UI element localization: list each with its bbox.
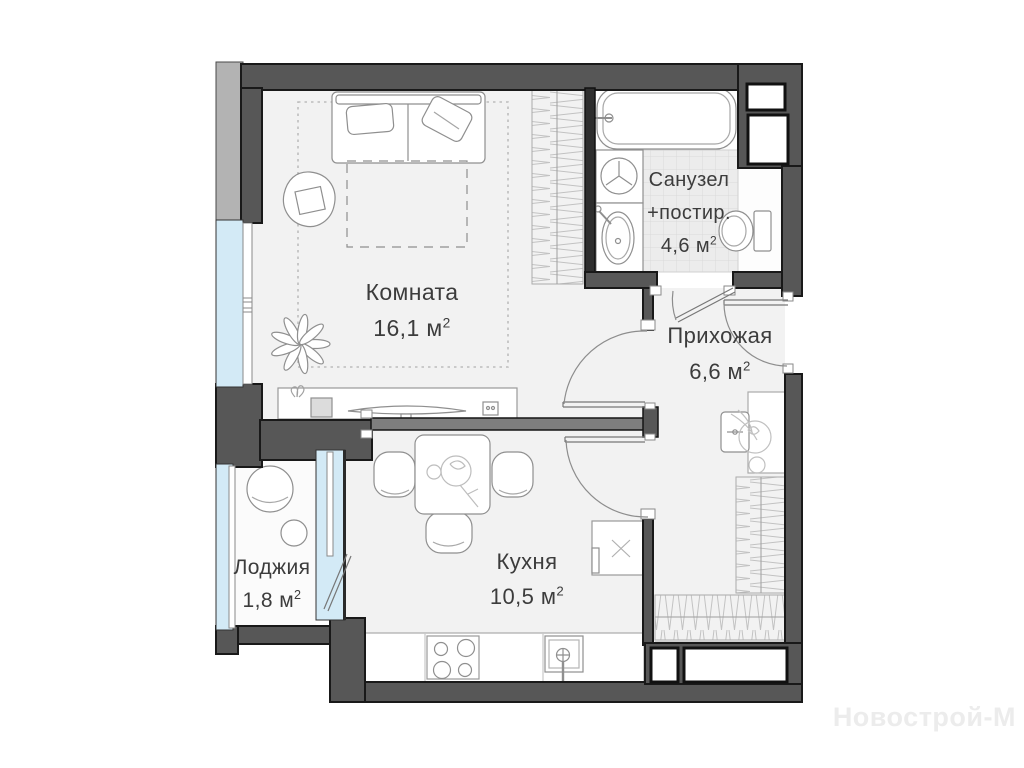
wall-corner-step — [330, 618, 365, 702]
room-area: 16,1 м2 — [312, 310, 512, 346]
wall-top — [241, 64, 802, 90]
room-name: Прихожая — [649, 318, 791, 354]
loggia-chair — [247, 466, 293, 512]
wall-left-upper — [241, 88, 262, 223]
closet-bedroom — [532, 90, 583, 284]
floor-plan: Комната 16,1 м2 Санузел +постир. 4,6 м2 … — [0, 0, 1024, 768]
wall-kitchen-hall — [643, 519, 653, 645]
wall-partition-end-cap — [643, 407, 658, 437]
room-area: 1,8 м2 — [210, 584, 334, 617]
room-window — [216, 220, 252, 387]
room-label-komnata: Комната 16,1 м2 — [312, 274, 512, 346]
wall-partition-room-kitchen — [371, 418, 645, 430]
stove — [427, 636, 479, 679]
tv-console — [278, 386, 517, 419]
shaft-bottom-1 — [651, 648, 678, 682]
hall-cabinet — [748, 392, 787, 473]
bed — [332, 92, 485, 163]
wall-bath-left — [585, 88, 595, 274]
room-name: Санузел — [633, 164, 745, 197]
room-label-kuhnya: Кухня 10,5 м2 — [427, 544, 627, 614]
wall-left-pillar — [216, 384, 262, 467]
hall-dresser — [721, 412, 749, 452]
room-area: 4,6 м2 — [633, 230, 745, 263]
watermark: Новострой-М — [826, 702, 1016, 733]
room-name: Кухня — [427, 544, 627, 579]
kitchen-counter — [363, 633, 644, 682]
wall-outer-left-band — [216, 62, 243, 225]
room-name: Лоджия — [210, 551, 334, 584]
wall-bath-bottom-right — [733, 272, 785, 288]
wardrobe-hall-horizontal — [655, 595, 786, 647]
room-area: 10,5 м2 — [427, 579, 627, 614]
bathtub — [592, 88, 736, 149]
room-label-lodzhiya: Лоджия 1,8 м2 — [210, 551, 334, 617]
room-extra: +постир. — [633, 197, 745, 230]
room-label-sanuzel: Санузел +постир. 4,6 м2 — [633, 164, 745, 263]
room-name: Комната — [312, 274, 512, 310]
room-area: 6,6 м2 — [649, 354, 791, 390]
shaft-topright-1 — [747, 84, 785, 110]
shaft-bottom-2 — [684, 648, 787, 682]
room-label-prihozhaya: Прихожая 6,6 м2 — [649, 318, 791, 390]
wardrobe-hall-vertical — [736, 477, 786, 593]
wall-bath-bottom-left — [585, 272, 657, 288]
wall-right-bath — [782, 166, 802, 296]
beanbag-chair — [283, 172, 335, 227]
shaft-topright-2 — [748, 115, 788, 164]
loggia-table — [281, 520, 307, 546]
floor-plan-drawing — [0, 0, 1024, 768]
